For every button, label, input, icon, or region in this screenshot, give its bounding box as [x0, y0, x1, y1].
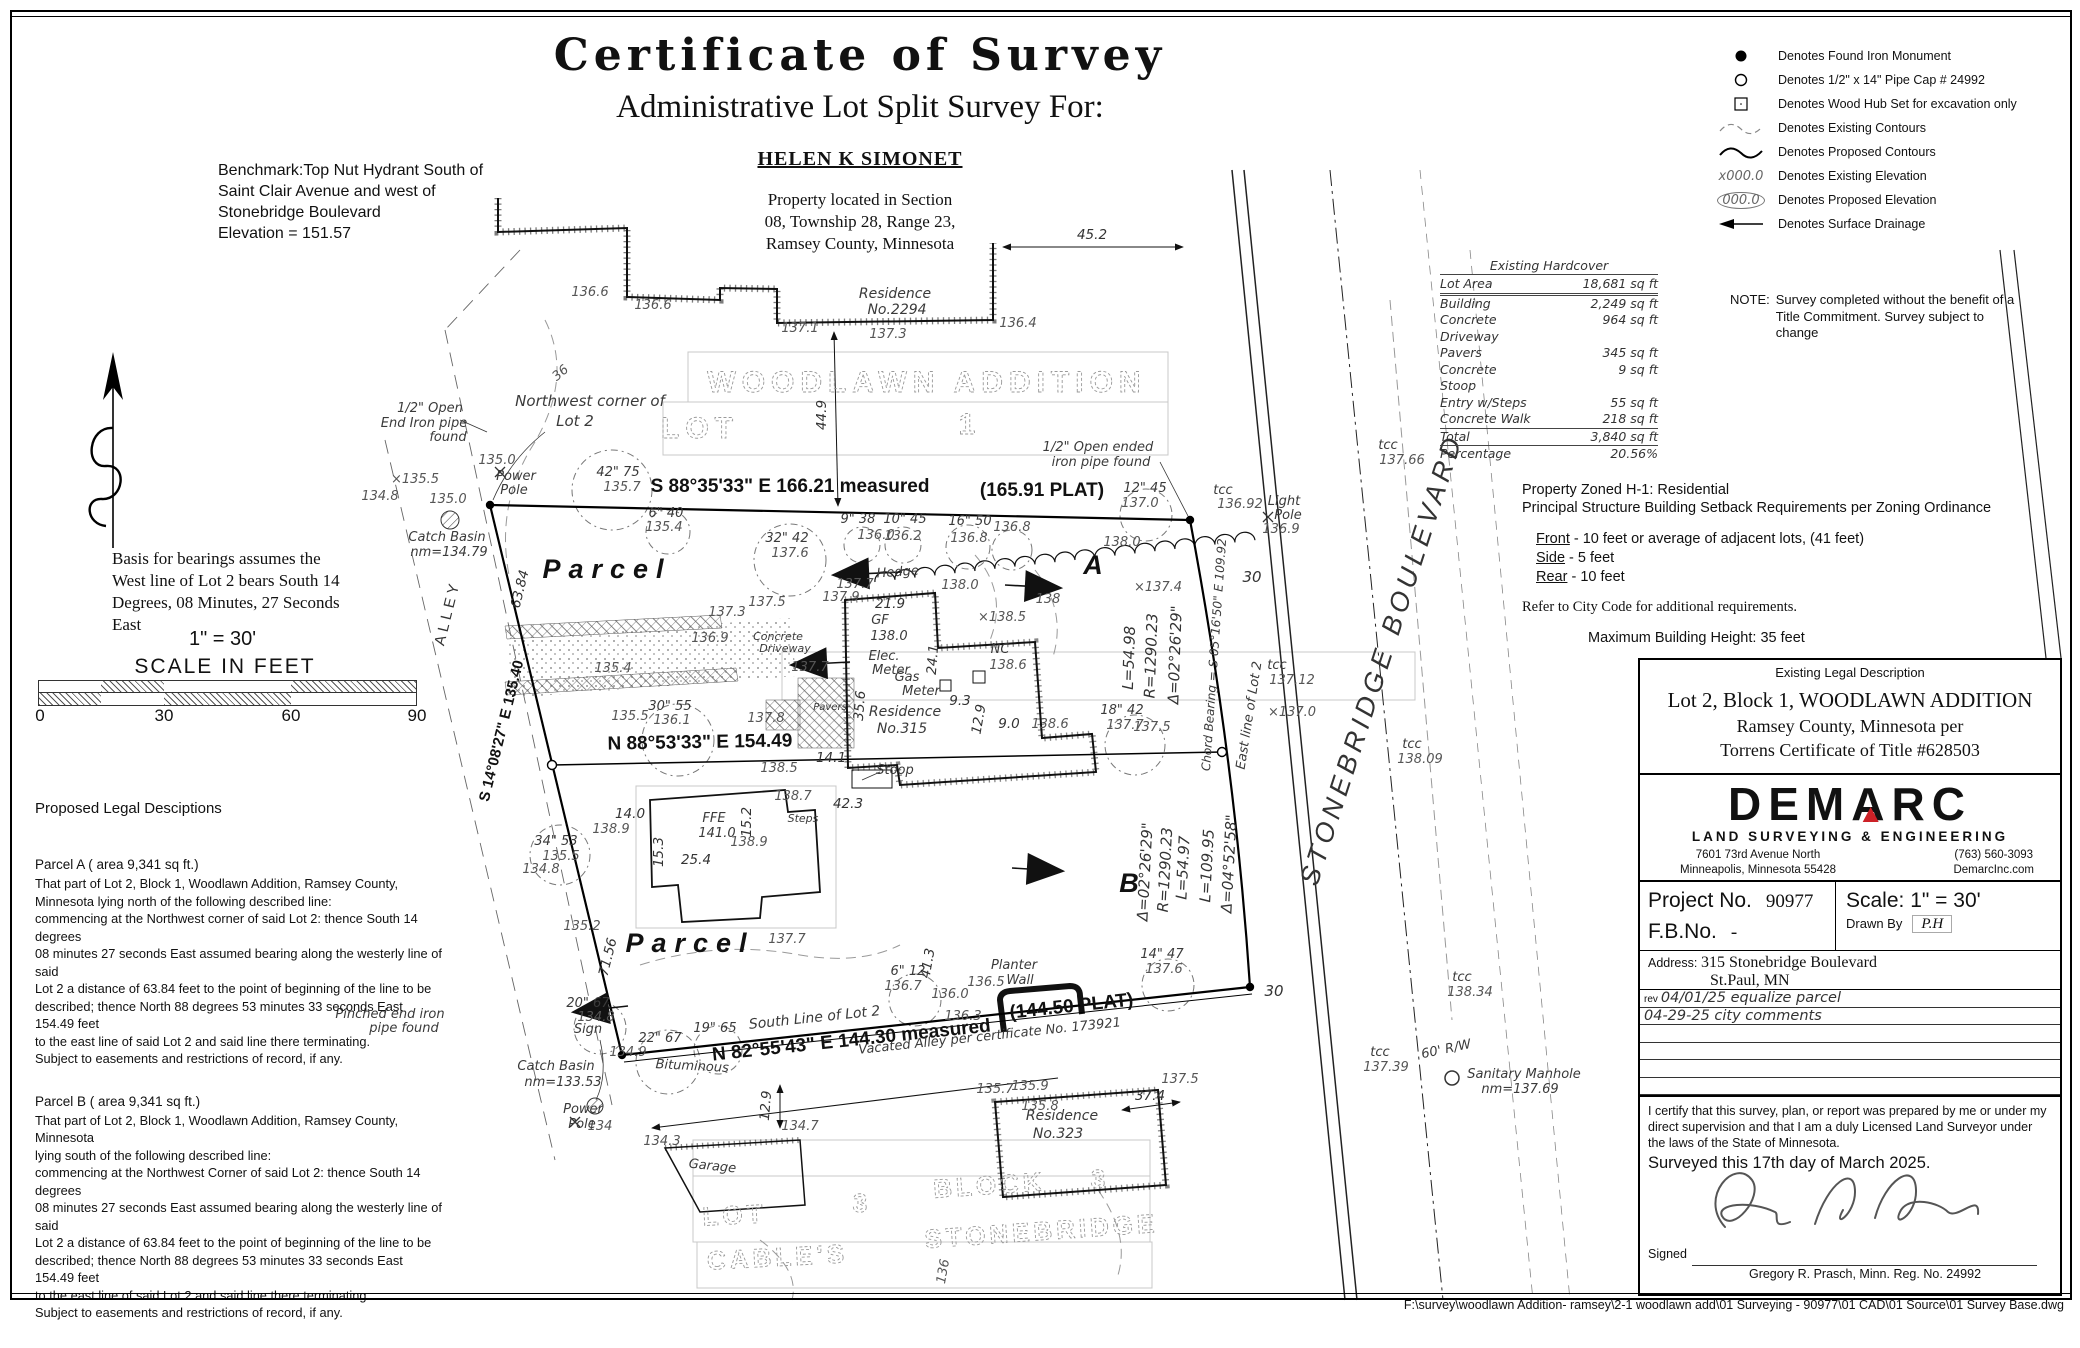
scale-tick: 30 — [155, 706, 174, 726]
hardcover-row: Entry w/Steps55 sq ft — [1440, 395, 1658, 412]
revision-rows: rev04/01/25 equalize parcel 04-29-25 cit… — [1640, 989, 2060, 1095]
survey-label: 137.7 — [791, 660, 829, 675]
scale-tick: 60 — [282, 706, 301, 726]
project-fields: Project No.90977 F.B.No.- — [1640, 882, 1836, 950]
hardcover-row: Concrete964 sq ft — [1440, 312, 1658, 329]
site-address: Address: 315 Stonebridge Boulevard St.Pa… — [1640, 950, 2060, 989]
survey-label: 134.3 — [643, 1134, 680, 1149]
survey-label: 136.5 — [967, 975, 1004, 990]
survey-label: 36 — [550, 362, 572, 384]
survey-label: Power — [563, 1102, 604, 1117]
survey-label: 134.8 — [577, 1010, 614, 1025]
arrow-icon — [1712, 217, 1770, 232]
setback-front: Front - 10 feet or average of adjacent l… — [1536, 530, 1992, 549]
wave-dash-icon — [1712, 120, 1770, 136]
note-label: NOTE: — [1730, 292, 1770, 342]
hardcover-item: Driveway — [1440, 329, 1499, 346]
legend-label: Denotes Existing Contours — [1770, 121, 1926, 135]
hardcover-row: Stoop — [1440, 378, 1658, 395]
file-path: F:\survey\woodlawn Addition- ramsey\2-1 … — [1404, 1298, 2064, 1312]
legal-line2: Ramsey County, Minnesota per — [1640, 716, 2060, 737]
survey-label: R=1290.23 — [1141, 613, 1162, 699]
scale-ticks: 0 30 60 90 — [38, 706, 417, 726]
survey-label: 137.3 — [869, 327, 906, 342]
survey-label: Δ=02°26'29" — [1164, 605, 1185, 705]
survey-label: 12" 45 — [1123, 481, 1166, 496]
survey-label: 15.3 — [651, 837, 667, 867]
survey-label: 138 — [1036, 592, 1061, 607]
legend-item: Denotes Existing Contours — [1712, 116, 2062, 140]
surveyor-name: Gregory R. Prasch, Minn. Reg. No. 24992 — [1700, 1267, 2030, 1281]
hardcover-row: Lot Area18,681 sq ft — [1440, 276, 1658, 296]
note-block: NOTE: Survey completed without the benef… — [1730, 292, 2030, 342]
legend: Denotes Found Iron MonumentDenotes 1/2" … — [1712, 44, 2062, 236]
survey-label: Residence — [1026, 1108, 1098, 1124]
catch-basin-top — [441, 511, 459, 529]
survey-label: 134.9 — [609, 1045, 646, 1060]
survey-label: Elec. — [868, 649, 899, 664]
survey-label: Sanitary Manhole — [1467, 1067, 1581, 1082]
hardcover-item: Total — [1440, 429, 1470, 446]
survey-label: Catch Basin — [408, 530, 485, 545]
survey-label: 135.7 — [976, 1082, 1014, 1097]
survey-label: 138.9 — [592, 822, 629, 837]
survey-label: L=54.97 — [1172, 835, 1193, 900]
survey-label: LOT — [661, 412, 739, 445]
survey-label: tcc — [1378, 438, 1397, 453]
survey-label: 63.84 — [508, 568, 533, 609]
legend-label: Denotes Wood Hub Set for excavation only — [1770, 97, 2017, 111]
proposed-heading: Proposed Legal Desciptions — [35, 800, 445, 817]
zoning-max-height: Maximum Building Height: 35 feet — [1588, 630, 1992, 646]
survey-label: L=109.95 — [1196, 829, 1218, 903]
company-phone-web: (763) 560-3093DemarcInc.com — [1953, 848, 2034, 878]
survey-label: LOT — [702, 1198, 767, 1231]
survey-label: 30 — [1264, 982, 1283, 1000]
parcel-a-title: Parcel A ( area 9,341 sq ft.) — [35, 857, 445, 872]
survey-label: 9.3 — [949, 693, 970, 709]
survey-label: 9" 38 — [841, 512, 876, 527]
survey-label: L=54.98 — [1119, 626, 1139, 690]
survey-label: Northwest corner of — [515, 392, 667, 410]
survey-label: 138.34 — [1447, 985, 1493, 1000]
survey-label: 71.56 — [596, 936, 621, 977]
north-arrow — [90, 352, 123, 548]
survey-label: 136.6 — [571, 285, 608, 300]
survey-label: Stoop — [876, 763, 914, 778]
survey-label: 138.6 — [1031, 717, 1068, 732]
survey-label: 136 — [934, 1258, 953, 1285]
survey-label: 138.6 — [989, 658, 1026, 673]
legend-label: Denotes Found Iron Monument — [1770, 49, 1951, 63]
survey-label: End Iron pipe — [381, 416, 467, 431]
survey-label: S 88°35'33" E 166.21 measured — [651, 476, 930, 497]
hardcover-item: Entry w/Steps — [1440, 395, 1527, 412]
setback-rear: Rear - 10 feet — [1536, 568, 1992, 587]
survey-label: 138.0 — [870, 629, 907, 644]
zoning-line2: Principal Structure Building Setback Req… — [1522, 500, 1992, 516]
legend-label: Denotes Proposed Contours — [1770, 145, 1936, 159]
survey-label: 136.92 — [1217, 497, 1263, 512]
survey-label: No.315 — [877, 721, 927, 737]
survey-label: 19" 65 — [693, 1021, 736, 1036]
revision-empty — [1640, 1025, 2060, 1043]
survey-label: 136.8 — [993, 520, 1030, 535]
drawn-by: Drawn ByP.H — [1846, 916, 2060, 933]
survey-label: tcc — [1213, 483, 1232, 498]
zoning-line1: Property Zoned H-1: Residential — [1522, 482, 1992, 498]
scale-tick: 90 — [408, 706, 427, 726]
survey-label: 137.39 — [1363, 1060, 1409, 1075]
survey-label: 136.9 — [691, 631, 728, 646]
survey-label: 136.0 — [931, 987, 968, 1002]
survey-label: 18" 42 — [1100, 703, 1143, 718]
survey-label: 134.7 — [781, 1119, 819, 1134]
hedge-line — [875, 532, 1255, 582]
survey-label: 137.3 — [708, 605, 745, 620]
survey-label: A — [1082, 550, 1111, 580]
survey-label: 135.7 — [603, 480, 641, 495]
survey-label: GF — [871, 613, 889, 628]
survey-label: 35.6 — [851, 690, 870, 721]
scale-ratio: 1" = 30' — [120, 628, 325, 651]
signature-line — [1692, 1265, 2037, 1266]
survey-label: WOODLAWN ADDITION — [707, 366, 1146, 399]
legend-label: Denotes Surface Drainage — [1770, 217, 1925, 231]
hardcover-item: Concrete — [1440, 362, 1497, 379]
setback-list: Front - 10 feet or average of adjacent l… — [1536, 530, 1992, 587]
sanitary-manhole — [1445, 1071, 1459, 1085]
hardcover-value: 345 sq ft — [1602, 345, 1658, 362]
logo-tagline: LAND SURVEYING & ENGINEERING — [1640, 829, 2060, 844]
proposed-legal-descriptions: Proposed Legal Desciptions Parcel A ( ar… — [35, 800, 445, 1348]
certification-text: I certify that this survey, plan, or rep… — [1648, 1103, 2052, 1151]
survey-label: ×135.5 — [391, 472, 439, 487]
survey-label: 24.1 — [924, 644, 943, 675]
scale-bar-row2 — [38, 693, 417, 706]
company-logo-block: DEMARC LAND SURVEYING & ENGINEERING 7601… — [1640, 773, 2060, 880]
house-parcel-b-outline — [650, 790, 820, 922]
survey-label: 136.8 — [950, 531, 987, 546]
survey-label: 21.9 — [875, 596, 905, 612]
hardcover-item: Pavers — [1440, 345, 1482, 362]
drawn-by-initials: P.H — [1912, 915, 1952, 933]
benchmark-note: Benchmark:Top Nut Hydrant South of Saint… — [218, 160, 518, 244]
oval-icon: 000.0 — [1712, 193, 1770, 208]
survey-label: 6" 40 — [649, 506, 684, 521]
survey-label: 30 — [1242, 568, 1261, 586]
survey-label: iron pipe found — [1052, 455, 1152, 470]
existing-legal-description: Existing Legal Description Lot 2, Block … — [1640, 660, 2060, 773]
survey-label: Steps — [788, 812, 819, 825]
dot-icon — [1712, 49, 1770, 64]
hardcover-value: 18,681 sq ft — [1583, 276, 1658, 293]
legend-item: Denotes 1/2" x 14" Pipe Cap # 24992 — [1712, 68, 2062, 92]
hardcover-item: Building — [1440, 296, 1491, 313]
survey-label: NC — [991, 642, 1011, 657]
survey-label: 136.3 — [944, 1009, 981, 1024]
certification-block: I certify that this survey, plan, or rep… — [1640, 1095, 2060, 1299]
survey-label: Δ=04°52'58" — [1217, 814, 1240, 914]
survey-label: 135.2 — [563, 919, 600, 934]
hardcover-value: 2,249 sq ft — [1591, 296, 1658, 313]
survey-label: STONEBRIDGE — [924, 1208, 1160, 1254]
survey-label: 30" 55 — [648, 699, 691, 714]
survey-label: Residence — [869, 704, 941, 720]
survey-label: Parcel — [542, 554, 671, 584]
hardcover-row: Concrete Walk218 sq ft — [1440, 411, 1658, 429]
survey-label: 137.5 — [748, 595, 785, 610]
survey-label: Pole — [1274, 508, 1301, 523]
legend-item: Denotes Found Iron Monument — [1712, 44, 2062, 68]
survey-label: Pole — [500, 483, 527, 498]
survey-label: STONEBRIDGE BOULEVARD — [1294, 429, 1469, 889]
survey-label: 1 — [959, 408, 982, 441]
revision-2: 04-29-25 city comments — [1640, 1008, 2060, 1026]
survey-label: 16" 50 — [948, 514, 991, 529]
project-number: Project No.90977 — [1648, 886, 1835, 917]
survey-label: 1/2" Open — [397, 401, 463, 416]
revision-empty — [1640, 1060, 2060, 1078]
survey-label: 137.12 — [1269, 673, 1315, 688]
survey-label: 137.5 — [1133, 720, 1170, 735]
page-title: Certificate of Survey — [460, 30, 1260, 81]
survey-label: 137.1 — [781, 321, 818, 336]
survey-label: ×137.4 — [1134, 580, 1182, 595]
logo-red-triangle: A — [1851, 779, 1891, 829]
hardcover-row: Total3,840 sq ft — [1440, 429, 1658, 447]
survey-label: 1/2" Open ended — [1043, 440, 1154, 455]
contour-lines — [506, 300, 1453, 1300]
survey-label: Pavers — [813, 702, 847, 713]
hardcover-value: 9 sq ft — [1618, 362, 1658, 379]
survey-label: 138.0 — [941, 578, 978, 593]
scale-drawn-fields: Scale: 1" = 30' Drawn ByP.H — [1836, 882, 2060, 950]
legend-label: Denotes Proposed Elevation — [1770, 193, 1936, 207]
survey-label: N 88°53'33" E 154.49 — [607, 730, 792, 754]
survey-label: 134.8 — [522, 862, 559, 877]
title-block: Existing Legal Description Lot 2, Block … — [1638, 658, 2062, 1296]
revision-empty — [1640, 1043, 2060, 1061]
survey-label: 44.9 — [814, 400, 830, 430]
survey-label: 138.0 — [1103, 535, 1140, 550]
legend-item: Denotes Surface Drainage — [1712, 212, 2062, 236]
header: Certificate of Survey Administrative Lot… — [460, 30, 1260, 255]
survey-label: 137.9 — [822, 590, 859, 605]
survey-label: 42" 75 — [596, 465, 639, 480]
survey-label: nm=137.69 — [1481, 1082, 1558, 1097]
survey-label: 10" 45 — [883, 512, 926, 527]
survey-label: 12.9 — [757, 1090, 776, 1121]
company-contact: 7601 73rd Avenue NorthMinneapolis, Minne… — [1640, 844, 2060, 878]
hardcover-row: Driveway — [1440, 329, 1658, 346]
signature — [1680, 1152, 2010, 1252]
survey-label: Catch Basin — [517, 1059, 594, 1074]
note-text: Survey completed without the benefit of … — [1776, 292, 2014, 342]
survey-label: Residence — [859, 286, 931, 302]
scale-bar-row1 — [38, 680, 417, 693]
survey-label: East line of Lot 2 — [1234, 660, 1266, 770]
survey-label: 135.4 — [594, 661, 631, 676]
survey-label: Power — [496, 469, 537, 484]
survey-label: 15.2 — [739, 807, 755, 837]
demarc-logo: DEMARC — [1640, 779, 2060, 829]
survey-label: tcc — [1452, 970, 1471, 985]
survey-label: Driveway — [759, 642, 811, 655]
survey-label: 14.1 — [816, 750, 846, 766]
signed-label: Signed — [1648, 1247, 1687, 1261]
field-book-number: F.B.No.- — [1648, 917, 1835, 948]
parcel-b-title: Parcel B ( area 9,341 sq ft.) — [35, 1094, 445, 1109]
survey-label: 136.6 — [634, 298, 671, 313]
hardcover-value: 964 sq ft — [1602, 312, 1658, 329]
survey-label: 135.9 — [1011, 1079, 1048, 1094]
survey-label: Garage — [688, 1157, 737, 1177]
survey-label: 137.6 — [771, 546, 808, 561]
survey-label: ALLEY — [431, 578, 464, 647]
survey-label: 137.6 — [1145, 962, 1182, 977]
parcel-b-body: That part of Lot 2, Block 1, Woodlawn Ad… — [35, 1112, 445, 1322]
survey-label: Pole — [568, 1117, 595, 1132]
legal-heading: Existing Legal Description — [1640, 665, 2060, 680]
client-name: HELEN K SIMONET — [460, 148, 1260, 171]
survey-label: 42.3 — [833, 796, 863, 812]
survey-label: Light — [1268, 494, 1301, 509]
survey-label: (165.91 PLAT) — [980, 480, 1104, 501]
survey-label: 25.4 — [681, 852, 711, 868]
survey-label: Meter — [902, 684, 941, 699]
survey-label: 136.4 — [999, 316, 1036, 331]
hardcover-title: Existing Hardcover — [1440, 258, 1658, 275]
project-row: Project No.90977 F.B.No.- Scale: 1" = 30… — [1640, 880, 2060, 950]
basis-of-bearings: Basis for bearings assumes the West line… — [112, 548, 362, 636]
survey-label: S 14°08'27" E 135.40 — [476, 658, 528, 803]
survey-label: 135.0 — [429, 492, 466, 507]
legend-item: Denotes Proposed Contours — [1712, 140, 2062, 164]
legal-line1: Lot 2, Block 1, WOODLAWN ADDITION — [1640, 688, 2060, 713]
survey-label: 136.7 — [884, 979, 922, 994]
survey-label: 136.2 — [884, 529, 921, 544]
setback-side: Side - 5 feet — [1536, 549, 1992, 568]
survey-label: 136.1 — [653, 713, 690, 728]
survey-label: 14.0 — [615, 806, 645, 822]
company-address: 7601 73rd Avenue NorthMinneapolis, Minne… — [1680, 848, 1836, 878]
hardcover-value: 55 sq ft — [1610, 395, 1658, 412]
survey-label: Lot 2 — [556, 412, 594, 430]
survey-label: found — [429, 430, 467, 445]
survey-label: 41.3 — [918, 947, 939, 979]
survey-label: 32" 42 — [765, 531, 808, 546]
survey-label: 136.9 — [1262, 522, 1299, 537]
survey-label: 137.5 — [1161, 1072, 1198, 1087]
scale-field: Scale: 1" = 30' — [1846, 886, 2060, 916]
survey-label: 137.8 — [747, 711, 784, 726]
survey-label: Parcel — [625, 928, 754, 958]
survey-label: No.2294 — [867, 302, 926, 318]
survey-label: CABLE'S — [706, 1238, 848, 1275]
survey-label: 137.0 — [1121, 496, 1158, 511]
hardcover-row: Concrete9 sq ft — [1440, 362, 1658, 379]
square-icon — [1712, 97, 1770, 112]
survey-label: Wall — [1006, 973, 1034, 988]
survey-label: 37.4 — [1135, 1088, 1165, 1104]
survey-label: No.323 — [1033, 1126, 1083, 1142]
survey-label: 22" 67 — [638, 1031, 682, 1046]
survey-label: FFE — [702, 811, 726, 826]
survey-label: ×137.0 — [1268, 705, 1316, 720]
hardcover-row: Building2,249 sq ft — [1440, 296, 1658, 313]
site-city: St.Paul, MN — [1710, 972, 2060, 990]
survey-label: 3 — [1091, 1164, 1109, 1194]
legend-label: Denotes Existing Elevation — [1770, 169, 1927, 183]
hardcover-value: 218 sq ft — [1602, 411, 1658, 428]
survey-label: 12.9 — [969, 703, 990, 735]
survey-label: 60' R/W — [1420, 1037, 1474, 1062]
survey-label: Hedge — [876, 564, 919, 582]
survey-label: 135.4 — [645, 520, 682, 535]
text-icon: x000.0 — [1712, 169, 1770, 184]
legend-item: x000.0Denotes Existing Elevation — [1712, 164, 2062, 188]
survey-label: 134.8 — [361, 489, 398, 504]
scale-label: SCALE IN FEET — [95, 655, 355, 679]
survey-label: 135.0 — [478, 453, 515, 468]
hardcover-value: 20.56% — [1610, 446, 1658, 463]
survey-label: 135.5 — [611, 709, 648, 724]
hardcover-row: Pavers345 sq ft — [1440, 345, 1658, 362]
survey-label: 14" 47 — [1140, 947, 1184, 962]
hardcover-value: 3,840 sq ft — [1591, 429, 1658, 446]
survey-label: tcc — [1402, 737, 1421, 752]
survey-label: 137.7 — [768, 932, 806, 947]
survey-label: 9.0 — [998, 716, 1019, 732]
legend-label: Denotes 1/2" x 14" Pipe Cap # 24992 — [1770, 73, 1985, 87]
hardcover-table: Existing Hardcover Lot Area18,681 sq ftB… — [1440, 258, 1658, 463]
survey-label: nm=133.53 — [524, 1075, 601, 1090]
revision-empty — [1640, 1078, 2060, 1096]
survey-label: tcc — [1267, 658, 1286, 673]
circle-icon — [1712, 73, 1770, 88]
zoning-block: Property Zoned H-1: Residential Principa… — [1522, 482, 1992, 646]
parcel-a-body: That part of Lot 2, Block 1, Woodlawn Ad… — [35, 875, 445, 1068]
survey-label: 138.7 — [774, 789, 812, 804]
survey-label: tcc — [1370, 1045, 1389, 1060]
survey-label: Gas — [895, 670, 920, 685]
page-subtitle: Administrative Lot Split Survey For: — [460, 89, 1260, 126]
survey-label: 138.5 — [760, 761, 797, 776]
hardcover-item: Concrete — [1440, 312, 1497, 329]
survey-label: 3 — [853, 1188, 871, 1218]
survey-label: Bituminous — [655, 1057, 729, 1076]
wave-solid-icon — [1712, 144, 1770, 160]
hardcover-item: Lot Area — [1440, 276, 1493, 293]
legend-item: 000.0Denotes Proposed Elevation — [1712, 188, 2062, 212]
survey-label: nm=134.79 — [410, 545, 487, 560]
hardcover-item: Concrete Walk — [1440, 411, 1531, 428]
scale-tick: 0 — [35, 706, 44, 726]
hardcover-item: Stoop — [1440, 378, 1476, 395]
revision-1: rev04/01/25 equalize parcel — [1640, 990, 2060, 1008]
legal-line3: Torrens Certificate of Title #628503 — [1640, 740, 2060, 761]
hardcover-row: Percentage20.56% — [1440, 446, 1658, 463]
survey-label: 138.09 — [1397, 752, 1443, 767]
legend-item: Denotes Wood Hub Set for excavation only — [1712, 92, 2062, 116]
survey-label: ×138.5 — [978, 610, 1026, 625]
survey-label: 34" 53 — [534, 834, 577, 849]
hardcover-item: Percentage — [1440, 446, 1511, 463]
survey-label: 20" 67 — [566, 996, 610, 1011]
survey-label: Planter — [991, 958, 1039, 973]
scale-bar: 0 30 60 90 — [38, 680, 417, 726]
